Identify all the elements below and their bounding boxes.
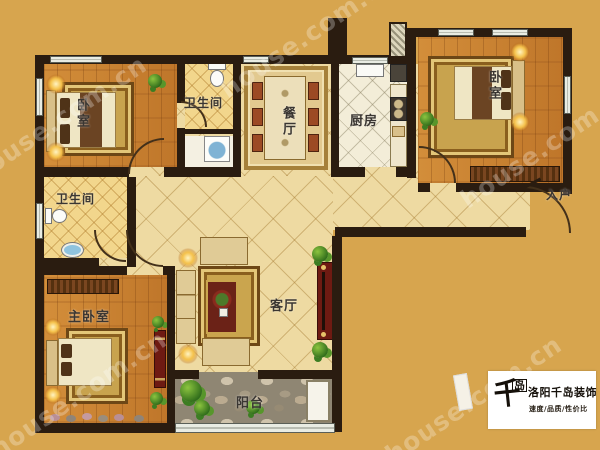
room-label-living-room: 客厅 [270,295,298,314]
window [352,57,388,64]
wardrobe [47,279,119,294]
wall-segment [396,167,416,177]
plant [420,112,434,126]
stove [390,97,407,121]
dining-chair [252,108,263,126]
logo-mark-char-boxed: 岛 [512,379,527,392]
plant [194,400,210,416]
sofa-seat [202,338,250,366]
company-logo: 千 岛 洛阳千岛装饰 速度/品质/性价比 [488,371,596,429]
sofa-seat [200,237,248,265]
coffee-table [219,308,228,317]
room-label-kitchen: 厨房 [350,110,378,129]
logo-slogan-text: 速度/品质/性价比 [529,404,588,414]
ceiling-light [44,318,62,336]
floor-lamp [178,248,198,268]
dining-chair [252,134,263,152]
wall-segment [331,167,365,177]
wall-segment [335,227,526,237]
dining-chair [308,108,319,126]
dining-chair [308,134,319,152]
vent-shaft [389,22,407,58]
toilet-bowl [52,209,67,223]
balcony-bench [306,380,330,422]
kitchen-sink [356,64,384,77]
logo-calligraphy-mark: 千 岛 [494,377,526,421]
room-label-entry: 入户 [546,186,572,203]
pillow [61,344,72,358]
ceiling-light [510,42,530,62]
floor-plan: 卧室 卫生间 餐厅 厨房 卧室 卫生间 主卧室 客厅 阳台 入户 house.c… [0,0,600,450]
wall-segment [332,236,342,432]
bed-headboard [46,340,58,386]
pillow [61,362,72,376]
wall-segment [418,183,430,192]
wall-segment [331,55,339,177]
wall-segment [407,28,416,178]
washbasin [62,243,83,257]
wall-segment [177,129,241,134]
window [564,76,571,114]
toilet [45,208,52,224]
logo-brand-text: 洛阳千岛装饰 [528,384,597,400]
wall-segment [410,28,572,37]
plant [148,74,162,88]
plant [312,246,328,262]
plant [312,342,328,358]
fridge [390,64,407,82]
living-room-carpet [206,280,238,334]
wall-segment [163,266,175,275]
sofa-back [176,270,196,344]
cabinet-knob [321,332,326,337]
window [50,56,102,63]
ceiling-light [46,142,66,162]
tv-cabinet [317,262,333,340]
cutting-board [392,126,405,137]
window [492,29,528,36]
floor-lamp [178,344,198,364]
balcony-glass-window [175,423,335,433]
dining-chair [308,82,319,100]
window [36,78,43,116]
ceiling-light [46,74,66,94]
room-label-balcony: 阳台 [236,392,264,411]
ceiling-light [510,112,530,132]
cabinet-knob [321,265,326,270]
window [438,29,474,36]
room-label-bathroom-top: 卫生间 [184,94,223,111]
toilet [208,63,226,70]
wall-segment [35,167,129,177]
window [36,203,43,239]
washing-machine [204,136,230,162]
wall-segment [258,370,334,379]
room-label-bathroom-middle: 卫生间 [56,190,95,207]
plant [180,380,202,402]
wall-segment [35,266,127,275]
plant [150,392,163,405]
wall-segment [173,370,199,379]
tv-screen [322,272,325,330]
room-label-dining: 餐厅 [278,106,297,138]
room-label-master-bedroom: 主卧室 [68,306,110,325]
wall-segment [177,167,241,177]
room-label-bedroom-top-right: 卧室 [484,70,503,102]
